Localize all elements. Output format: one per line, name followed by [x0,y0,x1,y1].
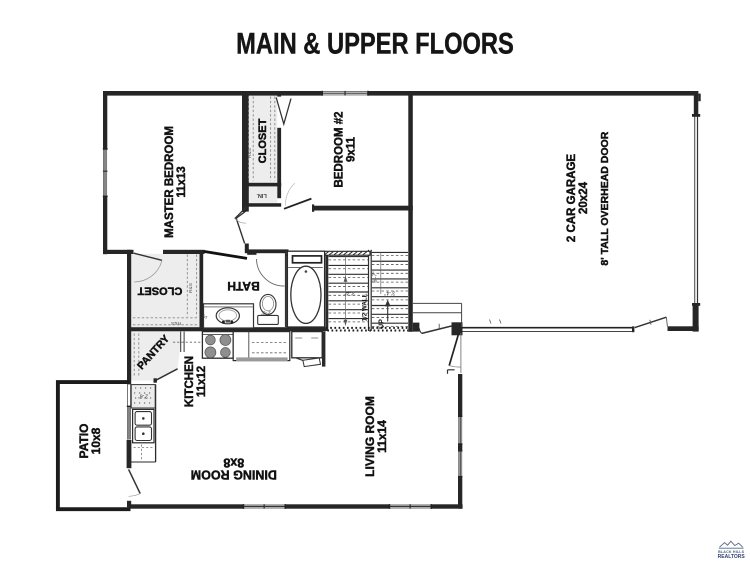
svg-text:11x14: 11x14 [375,420,389,453]
svg-text:UP: UP [378,319,385,329]
svg-text:BEDROOM #2: BEDROOM #2 [334,111,346,187]
svg-text:1/2 WALL: 1/2 WALL [361,293,368,321]
svg-text:3'-4": 3'-4" [344,290,355,296]
svg-text:R&S: R&S [188,283,194,293]
svg-text:3'-4": 3'-4" [384,290,395,296]
svg-text:MASTER BEDROOM: MASTER BEDROOM [164,126,176,238]
svg-text:20x24: 20x24 [578,181,590,214]
svg-text:10x8: 10x8 [89,427,103,454]
svg-text:BATH: BATH [227,279,259,293]
svg-text:REALTORS: REALTORS [718,554,746,560]
svg-text:8x8: 8x8 [223,456,244,470]
svg-text:6'-7": 6'-7" [372,271,378,282]
svg-text:CLOSET: CLOSET [257,118,269,163]
svg-text:9x11: 9x11 [346,136,358,162]
svg-text:2 CAR GARAGE: 2 CAR GARAGE [566,154,578,243]
svg-text:BLACK HILLS: BLACK HILLS [718,550,745,554]
svg-text:8' TALL OVERHEAD DOOR: 8' TALL OVERHEAD DOOR [599,131,611,265]
svg-text:R&S: R&S [247,148,253,158]
svg-text:LIN.: LIN. [256,192,267,198]
svg-text:R&S: R&S [171,320,181,326]
svg-text:MAIN & UPPER FLOORS: MAIN & UPPER FLOORS [236,27,514,60]
svg-text:11x13: 11x13 [176,166,188,197]
svg-text:4": 4" [203,314,209,319]
svg-text:2'-0": 2'-0" [261,309,271,315]
svg-text:2'-6": 2'-6" [138,393,148,399]
svg-text:CLOSET: CLOSET [137,285,182,297]
svg-text:KITCHEN: KITCHEN [184,356,196,407]
svg-text:11x12: 11x12 [196,366,208,397]
